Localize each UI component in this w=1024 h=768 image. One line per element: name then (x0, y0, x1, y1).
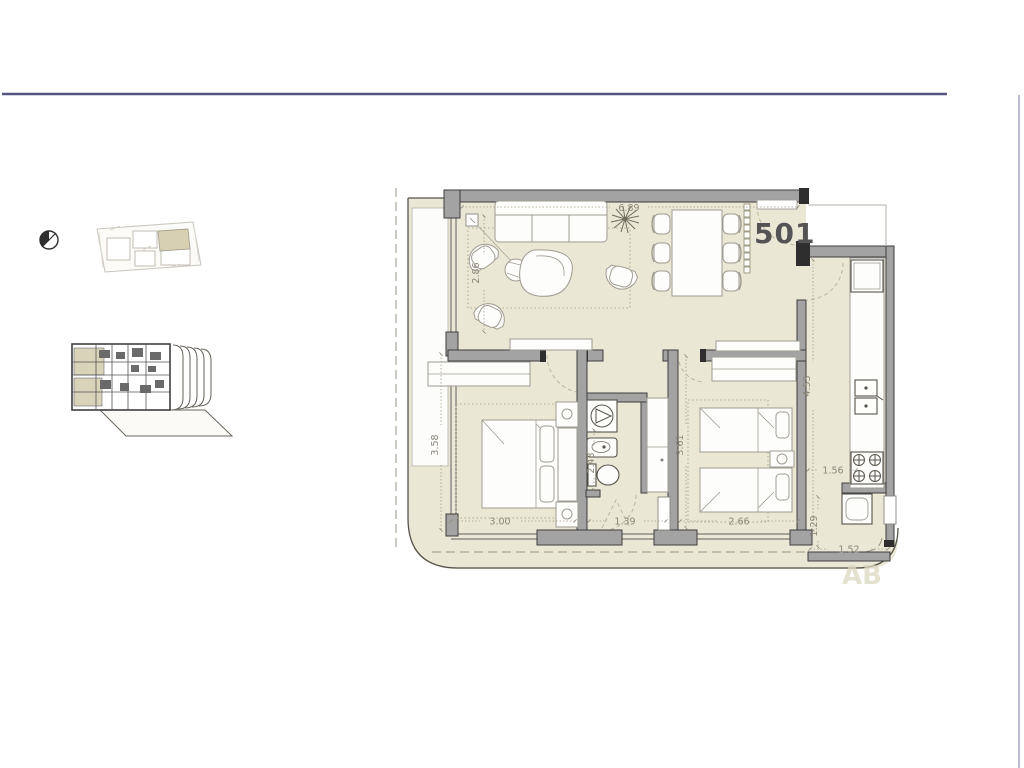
balcony-planter (412, 208, 448, 466)
nightstand (770, 451, 794, 467)
dining-chair (723, 243, 741, 263)
dim-master-depth: 3.58 (430, 434, 441, 455)
dining-chair (723, 271, 741, 291)
building-edge (808, 205, 886, 246)
dim-laundry-width: 1.52 (838, 545, 859, 556)
fridge (851, 260, 883, 292)
floor-plan-sheet: AB (0, 0, 1024, 768)
dim-living-width: 6.89 (618, 203, 639, 214)
dining-area (652, 204, 750, 296)
dining-chair (652, 214, 670, 234)
floor-plan: AB (396, 188, 898, 591)
hall-door-leaf (658, 497, 670, 530)
stacked-floor-plans-thumbnail (72, 344, 232, 436)
site-plan-thumbnail (97, 222, 201, 272)
dim-bedroom2-depth: 3.61 (675, 434, 686, 455)
dining-table (672, 210, 722, 296)
dim-master-width: 3.00 (489, 517, 510, 528)
highlighted-building (158, 229, 190, 251)
console (510, 339, 592, 350)
pillow (540, 426, 554, 462)
pillow (776, 474, 789, 500)
laundry-door (884, 496, 896, 524)
nightstand (556, 502, 578, 527)
dining-chair (652, 243, 670, 263)
hall-closet (647, 398, 668, 492)
watermark: AB (842, 561, 882, 591)
north-arrow-icon (40, 231, 58, 249)
washer (842, 494, 872, 524)
stove (851, 452, 883, 484)
console (716, 341, 800, 351)
dim-bedroom2-width: 2.66 (728, 517, 749, 528)
laundry (842, 494, 896, 524)
dining-chair (652, 271, 670, 291)
wall-pier (446, 514, 458, 536)
dim-hall-width: 1.39 (614, 517, 635, 528)
unit-number-label: 501 (754, 217, 815, 250)
pillow (776, 412, 789, 438)
kitchen (850, 258, 884, 488)
entry-door-leaf (757, 200, 797, 209)
dim-living-depth: 2.86 (471, 262, 482, 283)
dim-laundry-depth: 1.29 (809, 515, 820, 536)
page: AB (0, 0, 1024, 768)
dim-kitchen-width: 1.56 (822, 466, 843, 477)
nightstand (556, 402, 578, 427)
dim-bath-depth: 2.43 (586, 452, 597, 473)
headboard (558, 428, 577, 501)
dim-kitchen-depth: 4.53 (802, 375, 813, 396)
dining-chair (723, 214, 741, 234)
toilet (597, 465, 619, 485)
pillow (540, 466, 554, 502)
